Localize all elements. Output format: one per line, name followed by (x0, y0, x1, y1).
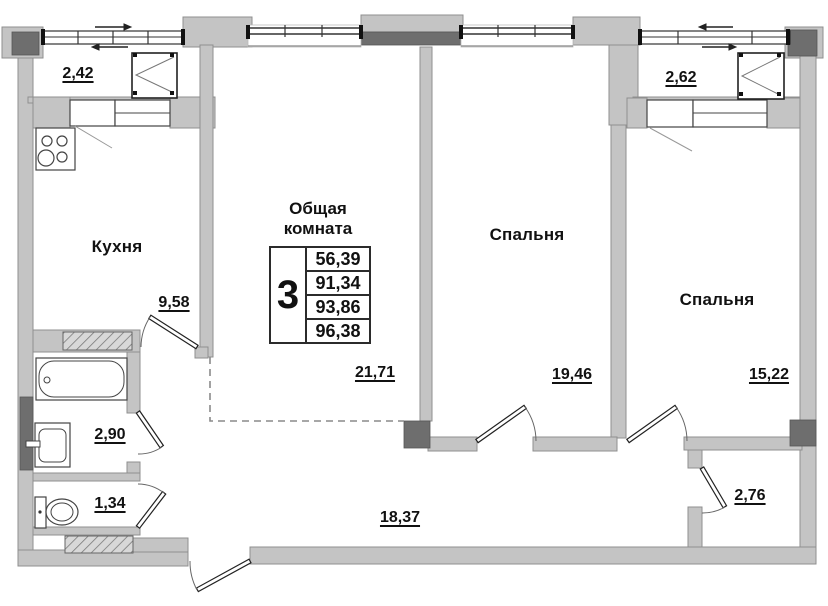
hallway-area-label: 18,37 (380, 509, 420, 527)
kitchen-balcony-door-window-unit (70, 100, 170, 126)
kitchen-corner-line (75, 126, 112, 148)
wardrobe-balcony2 (738, 53, 784, 99)
door-kitchen (141, 315, 198, 349)
vent-shaft-kitchen (63, 332, 132, 350)
bedroom2-area-label: 15,22 (749, 366, 789, 384)
living-room-label-line2: комната (284, 219, 353, 239)
balcony2-area-label: 2,62 (665, 69, 696, 87)
area-value-cell: 93,86 (307, 294, 369, 318)
door-entrance (190, 559, 251, 591)
bathtub (36, 358, 127, 400)
balcony1-area-label: 2,42 (62, 65, 93, 83)
bedroom1-window (459, 25, 575, 47)
balcony2-glazing (638, 24, 790, 50)
kitchen-area-label: 9,58 (158, 294, 189, 312)
living-room-label-line1: Общая (284, 199, 353, 219)
vent-shaft-toilet (65, 536, 133, 553)
door-bedroom1 (476, 405, 536, 442)
floor-plan: 2,42 2,62 Кухня 9,58 Общая комната 21,71… (0, 0, 828, 606)
bedroom2-corner-line (650, 128, 692, 151)
bedroom2-label: Спальня (680, 290, 755, 310)
door-toilet (136, 484, 165, 528)
living-area-label: 21,71 (355, 364, 395, 382)
door-bathroom (136, 411, 163, 454)
living-room-label: Общая комната (284, 199, 353, 239)
door-bedroom2 (627, 405, 687, 442)
area-value-cell: 91,34 (307, 270, 369, 294)
balcony1-glazing (41, 24, 185, 50)
living-room-window (246, 25, 363, 47)
bedroom1-label: Спальня (490, 225, 565, 245)
kitchen-label: Кухня (92, 237, 143, 257)
wardrobe-balcony1 (132, 53, 177, 98)
bedroom2-balcony-door-window-unit (647, 100, 767, 127)
stove (36, 128, 75, 170)
toilet-area-label: 1,34 (94, 495, 125, 513)
bathroom-area-label: 2,90 (94, 426, 125, 444)
area-values-column: 56,39 91,34 93,86 96,38 (307, 248, 369, 342)
toilet (35, 497, 78, 528)
room-count-cell: 3 (271, 248, 307, 342)
area-value-cell: 56,39 (307, 248, 369, 270)
area-value-cell: 96,38 (307, 318, 369, 342)
door-storage (700, 467, 726, 513)
apartment-area-table: 3 56,39 91,34 93,86 96,38 (269, 246, 371, 344)
bedroom1-area-label: 19,46 (552, 366, 592, 384)
storage-area-label: 2,76 (734, 487, 765, 505)
